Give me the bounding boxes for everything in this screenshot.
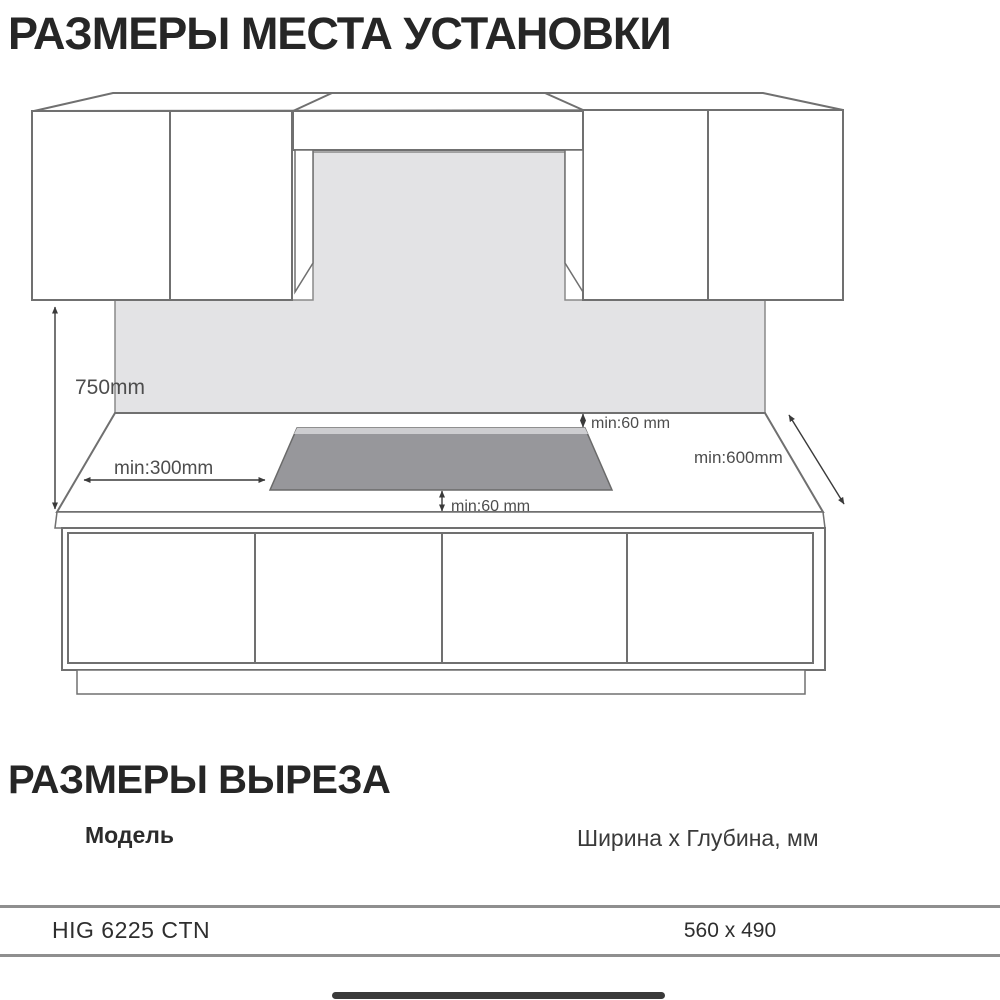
dim-label-min300: min:300mm bbox=[114, 458, 213, 479]
cutout-dimensions-title: РАЗМЕРЫ ВЫРЕЗА bbox=[8, 758, 608, 803]
dim-label-750: 750mm bbox=[75, 376, 145, 399]
table-rule-bottom bbox=[0, 954, 1000, 957]
wall-cabinet-right bbox=[583, 110, 843, 300]
base-cabinet-door-3 bbox=[442, 533, 627, 663]
hood-canopy bbox=[293, 111, 583, 150]
table-row-model-value: HIG 6225 CTN bbox=[52, 917, 210, 944]
hood-chimney-left bbox=[295, 150, 313, 292]
table-rule-top bbox=[0, 905, 1000, 908]
cooktop bbox=[270, 428, 612, 490]
wall-cabinet-left bbox=[32, 111, 292, 300]
cabinet-roof bbox=[34, 93, 843, 111]
base-cabinet-door-4 bbox=[627, 533, 813, 663]
base-cabinet-door-1 bbox=[68, 533, 255, 663]
installation-diagram: 750mm min:300mm min:60 mm min:60 mm min:… bbox=[0, 80, 1000, 730]
cooktop-top-edge bbox=[294, 428, 588, 434]
installation-dimensions-title: РАЗМЕРЫ МЕСТА УСТАНОВКИ bbox=[8, 8, 968, 60]
dim-label-min60-top: min:60 mm bbox=[591, 415, 670, 432]
dim-label-min60-bottom: min:60 mm bbox=[451, 498, 530, 515]
dim-label-min600: min:600mm bbox=[694, 448, 783, 467]
table-header-width-depth: Ширина x Глубина, мм bbox=[577, 825, 819, 852]
home-indicator-bar bbox=[332, 992, 665, 999]
page: РАЗМЕРЫ МЕСТА УСТАНОВКИ bbox=[0, 0, 1000, 1000]
hood-chimney-right bbox=[565, 150, 583, 292]
countertop-front-edge bbox=[55, 512, 825, 528]
table-header-model: Модель bbox=[85, 822, 174, 849]
base-cabinet-plinth bbox=[77, 670, 805, 694]
base-cabinet-door-2 bbox=[255, 533, 442, 663]
table-row-size-value: 560 x 490 bbox=[655, 919, 805, 943]
